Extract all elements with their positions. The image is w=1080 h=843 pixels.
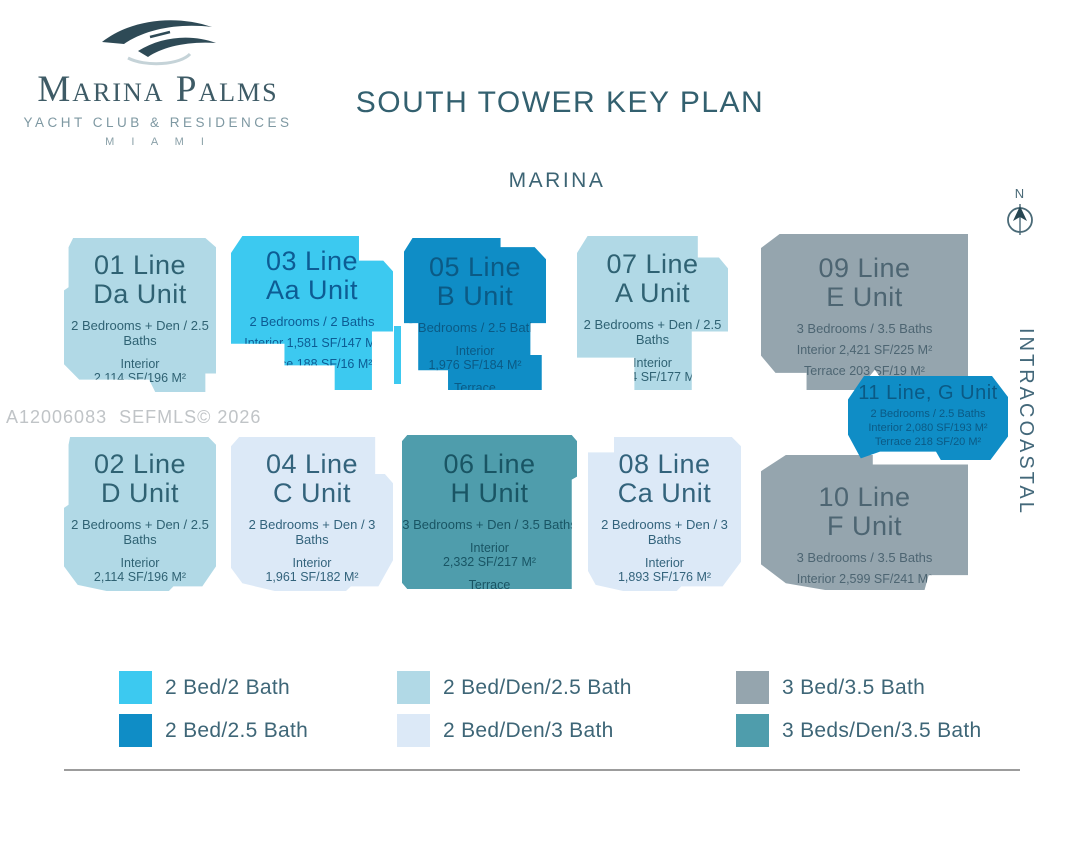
terrace-value: 197 SF/18 M² <box>404 395 546 409</box>
unit-line-label: 10 Line <box>761 483 968 512</box>
unit-name-label: A Unit <box>577 279 728 308</box>
unit-bedrooms: 2 Bedrooms / 2.5 Baths <box>404 320 546 335</box>
legend-swatch-2bed-2bath <box>119 671 152 704</box>
legend-item: 2 Bed/Den/2.5 Bath <box>397 671 632 704</box>
unit-02-d: 02 Line D Unit 2 Bedrooms + Den / 2.5 Ba… <box>64 437 216 591</box>
interior-label: Interior <box>64 357 216 371</box>
interior-label: Interior <box>231 556 393 570</box>
terrace-label: Terrace <box>404 381 546 395</box>
unit-09-e: 09 Line E Unit 3 Bedrooms / 3.5 Baths In… <box>761 234 968 390</box>
unit-04-c: 04 Line C Unit 2 Bedrooms + Den / 3 Bath… <box>231 437 393 591</box>
terrace-value: 214 SF/20 M² <box>588 607 741 621</box>
legend-label: 2 Bed/2.5 Bath <box>165 719 308 743</box>
terrace-label: Terrace <box>588 593 741 607</box>
terrace-label: Terrace <box>402 578 577 592</box>
unit-name-label: B Unit <box>404 282 546 311</box>
interior-line: Interior 1,581 SF/147 M² <box>231 336 393 350</box>
interior-line: Interior 2,599 SF/241 M² <box>761 572 968 586</box>
marina-label: MARINA <box>397 169 717 193</box>
legend-label: 3 Beds/Den/3.5 Bath <box>782 719 982 743</box>
unit-line-label: 08 Line <box>588 450 741 479</box>
interior-value: 2,114 SF/196 M² <box>64 371 216 385</box>
unit-line-label: 01 Line <box>64 251 216 280</box>
unit-bedrooms: 3 Bedrooms / 3.5 Baths <box>761 550 968 565</box>
unit-11-g: 11 Line, G Unit 2 Bedrooms / 2.5 Baths I… <box>848 376 1008 460</box>
terrace-label: Terrace <box>64 593 216 607</box>
bottom-divider <box>64 769 1020 771</box>
legend-label: 2 Bed/Den/2.5 Bath <box>443 676 632 700</box>
unit-name-label: E Unit <box>761 283 968 312</box>
logo: Marina Palms YACHT CLUB & RESIDENCES M I… <box>18 14 298 148</box>
interior-label: Interior <box>577 356 728 370</box>
page-title: SOUTH TOWER KEY PLAN <box>330 86 790 120</box>
unit-line-label: 04 Line <box>231 450 393 479</box>
interior-value: 1,893 SF/176 M² <box>588 570 741 584</box>
logo-name: Marina Palms <box>18 68 298 111</box>
terrace-line: Terrace 218 SF/20 M² <box>848 436 1008 448</box>
unit-05-b: 05 Line B Unit 2 Bedrooms / 2.5 Baths In… <box>404 238 546 390</box>
interior-label: Interior <box>402 541 577 555</box>
legend-item: 3 Bed/3.5 Bath <box>736 671 925 704</box>
unit-name-label: Da Unit <box>64 280 216 309</box>
unit-line-label: 06 Line <box>402 450 577 479</box>
interior-value: 2,114 SF/196 M² <box>64 570 216 584</box>
unit-bedrooms: 2 Bedrooms + Den / 2.5 Baths <box>64 318 216 348</box>
unit-03-sliver <box>394 326 401 384</box>
terrace-value: 190 SF/18 M² <box>402 592 577 606</box>
north-letter: N <box>1002 186 1038 201</box>
unit-name-label: F Unit <box>761 512 968 541</box>
interior-value: 2,332 SF/217 M² <box>402 555 577 569</box>
legend-item: 2 Bed/Den/3 Bath <box>397 714 614 747</box>
interior-value: 1,976 SF/184 M² <box>404 358 546 372</box>
unit-bedrooms: 2 Bedrooms / 2 Baths <box>231 314 393 329</box>
legend-swatch-3bed-3half-bath <box>736 671 769 704</box>
north-compass: N <box>1002 186 1038 242</box>
terrace-line: Terrace 203 SF/19 M² <box>761 593 968 607</box>
unit-line-label: 09 Line <box>761 254 968 283</box>
legend-item: 2 Bed/2.5 Bath <box>119 714 308 747</box>
interior-value: 1,904 SF/177 M² <box>577 370 728 384</box>
legend-label: 3 Bed/3.5 Bath <box>782 676 925 700</box>
legend-label: 2 Bed/Den/3 Bath <box>443 719 614 743</box>
legend-swatch-3beds-den-3half-bath <box>736 714 769 747</box>
terrace-value: 241 SF/22 M² <box>64 607 216 621</box>
key-plan-page: Marina Palms YACHT CLUB & RESIDENCES M I… <box>0 0 1080 843</box>
unit-line-label: 11 Line, G Unit <box>848 383 1008 405</box>
legend-swatch-2bed-den-2half-bath <box>397 671 430 704</box>
boat-logo-icon <box>94 14 222 66</box>
unit-07-a: 07 Line A Unit 2 Bedrooms + Den / 2.5 Ba… <box>577 236 728 390</box>
unit-bedrooms: 2 Bedrooms + Den / 3 Baths <box>231 517 393 547</box>
unit-bedrooms: 3 Bedrooms / 3.5 Baths <box>761 321 968 336</box>
unit-bedrooms: 2 Bedrooms + Den / 2.5 Baths <box>577 317 728 347</box>
logo-city: M I A M I <box>18 136 298 148</box>
unit-line-label: 02 Line <box>64 450 216 479</box>
interior-label: Interior <box>404 344 546 358</box>
unit-line-label: 07 Line <box>577 250 728 279</box>
unit-03-aa: 03 Line Aa Unit 2 Bedrooms / 2 Baths Int… <box>231 236 393 390</box>
unit-name-label: D Unit <box>64 479 216 508</box>
unit-bedrooms: 2 Bedrooms / 2.5 Baths <box>848 408 1008 420</box>
unit-name-label: C Unit <box>231 479 393 508</box>
unit-name-label: H Unit <box>402 479 577 508</box>
unit-08-ca: 08 Line Ca Unit 2 Bedrooms + Den / 3 Bat… <box>588 437 741 591</box>
interior-label: Interior <box>64 556 216 570</box>
unit-10-f: 10 Line F Unit 3 Bedrooms / 3.5 Baths In… <box>761 455 968 590</box>
unit-name-label: Ca Unit <box>588 479 741 508</box>
legend-swatch-2bed-2half-bath <box>119 714 152 747</box>
legend-swatch-2bed-den-3bath <box>397 714 430 747</box>
terrace-line: Terrace 188 SF/16 M² <box>231 357 393 371</box>
terrace-label: Terrace <box>577 393 728 407</box>
unit-line-label: 03 Line <box>231 247 393 276</box>
unit-bedrooms: 2 Bedrooms + Den / 2.5 Baths <box>64 517 216 547</box>
interior-line: Interior 2,421 SF/225 M² <box>761 343 968 357</box>
interior-value: 1,961 SF/182 M² <box>231 570 393 584</box>
mls-watermark: A12006083 SEFMLS© 2026 <box>6 407 261 428</box>
interior-line: Interior 2,080 SF/193 M² <box>848 422 1008 434</box>
unit-bedrooms: 2 Bedrooms + Den / 3 Baths <box>588 517 741 547</box>
logo-tagline: YACHT CLUB & RESIDENCES <box>18 115 298 130</box>
terrace-value: 169 SF/16 M² <box>577 407 728 421</box>
legend-item: 3 Beds/Den/3.5 Bath <box>736 714 982 747</box>
compass-icon <box>1003 201 1037 237</box>
legend-item: 2 Bed/2 Bath <box>119 671 290 704</box>
unit-06-h: 06 Line H Unit 3 Bedrooms + Den / 3.5 Ba… <box>402 435 577 589</box>
unit-bedrooms: 3 Bedrooms + Den / 3.5 Baths <box>402 517 577 532</box>
unit-line-label: 05 Line <box>404 253 546 282</box>
unit-01-da: 01 Line Da Unit 2 Bedrooms + Den / 2.5 B… <box>64 238 216 392</box>
terrace-value: 210 SF/20 M² <box>231 607 393 621</box>
intracoastal-label: INTRACOASTAL <box>1014 328 1037 528</box>
legend-label: 2 Bed/2 Bath <box>165 676 290 700</box>
unit-name-label: Aa Unit <box>231 276 393 305</box>
interior-label: Interior <box>588 556 741 570</box>
terrace-label: Terrace <box>231 593 393 607</box>
